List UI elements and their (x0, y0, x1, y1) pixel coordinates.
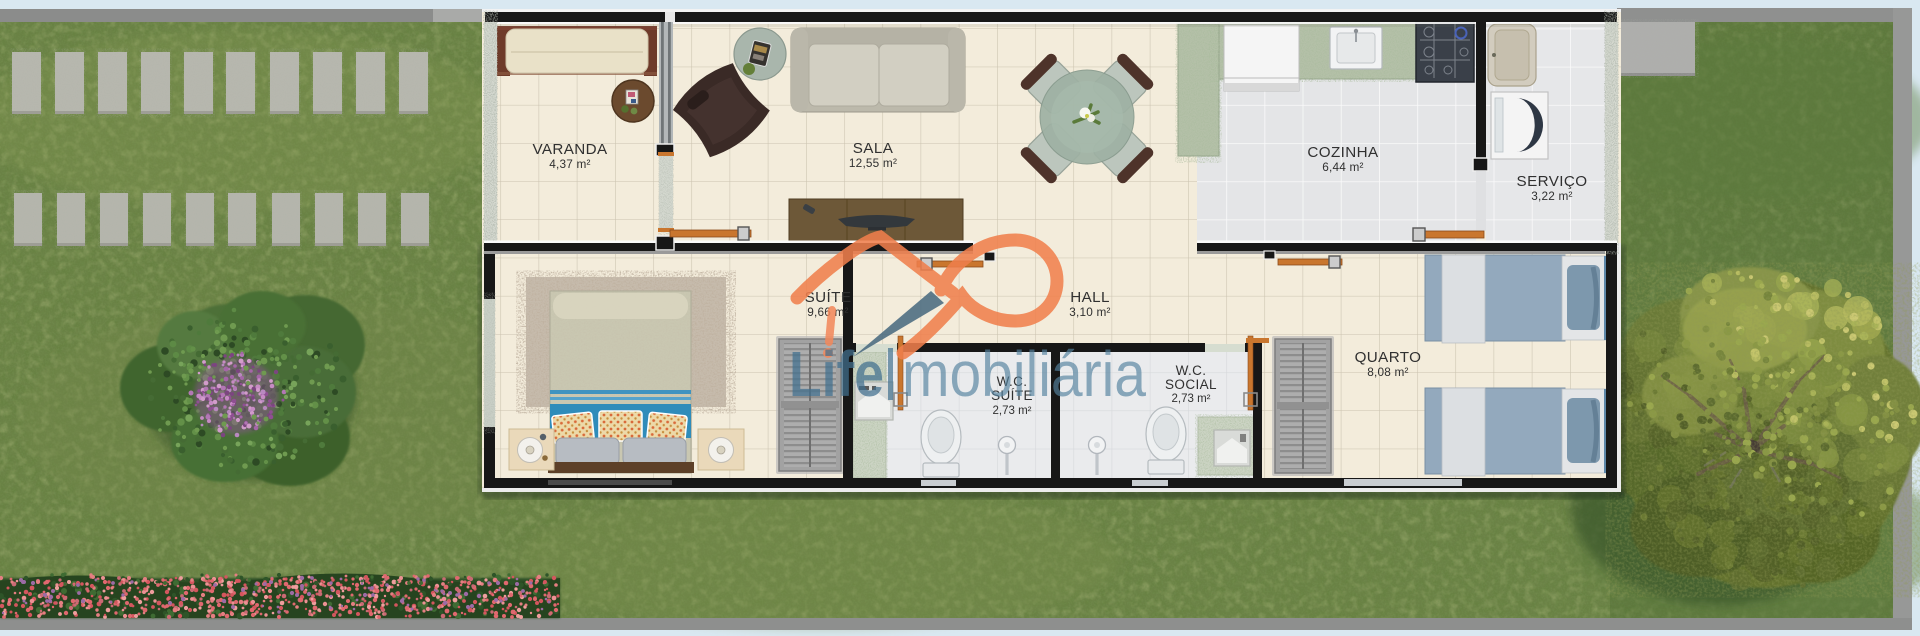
svg-text:HALL: HALL (1070, 289, 1110, 306)
svg-text:4,37 m²: 4,37 m² (549, 157, 590, 171)
svg-text:SERVIÇO: SERVIÇO (1517, 173, 1588, 190)
svg-text:Life: Life (789, 338, 884, 410)
svg-text:2,73 m²: 2,73 m² (1172, 393, 1211, 405)
svg-text:SOCIAL: SOCIAL (1165, 377, 1217, 392)
svg-text:mobiliária: mobiliária (902, 338, 1146, 410)
svg-text:3,22 m²: 3,22 m² (1531, 189, 1572, 203)
svg-text:12,55 m²: 12,55 m² (849, 156, 897, 170)
svg-text:COZINHA: COZINHA (1307, 144, 1379, 161)
svg-text:SALA: SALA (853, 140, 894, 157)
svg-text:VARANDA: VARANDA (532, 141, 608, 158)
svg-text:QUARTO: QUARTO (1355, 349, 1422, 366)
svg-text:3,10 m²: 3,10 m² (1069, 305, 1110, 319)
svg-text:8,08 m²: 8,08 m² (1367, 365, 1408, 379)
svg-text:W.C.: W.C. (1176, 363, 1207, 378)
svg-text:6,44 m²: 6,44 m² (1322, 160, 1363, 174)
